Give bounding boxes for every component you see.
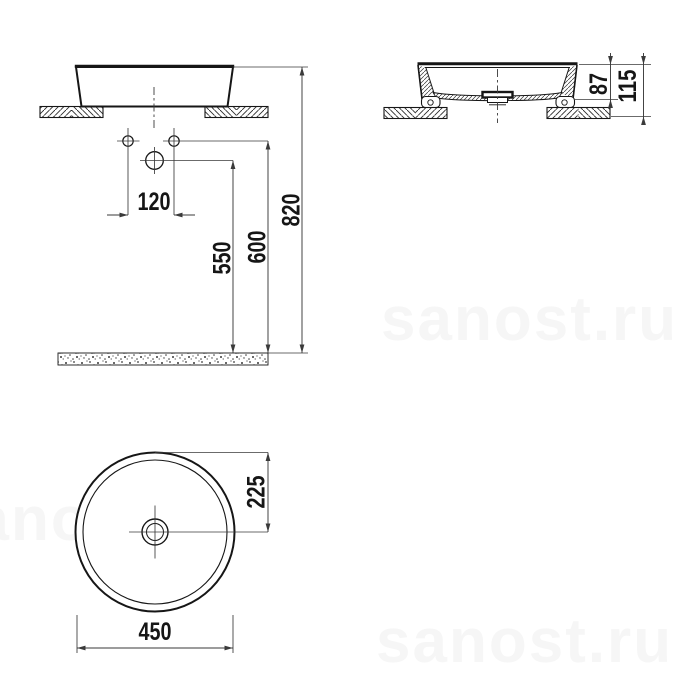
basin-foot-left bbox=[422, 97, 441, 108]
dim-label-rim-height: 820 bbox=[278, 194, 306, 227]
dim-arrow bbox=[266, 141, 271, 150]
countertop-side-left bbox=[384, 108, 447, 119]
dim-arrow bbox=[231, 161, 236, 170]
technical-drawing-sheet: sanost.ru sanost.ru sanost.ru bbox=[0, 0, 700, 700]
dim-arrow bbox=[120, 213, 129, 218]
basin-dimension-drawing: 120 550 600 bbox=[0, 0, 700, 700]
dim-label-center-offset: 225 bbox=[243, 475, 271, 508]
dim-drain-height: 550 bbox=[209, 161, 237, 354]
countertop-front-right bbox=[205, 107, 268, 118]
foot-hole bbox=[562, 100, 567, 105]
dim-holes-height: 600 bbox=[244, 141, 272, 353]
dim-total-height: 115 bbox=[611, 53, 651, 125]
basin-front-outline bbox=[76, 67, 233, 107]
dim-label-hole-spacing: 120 bbox=[138, 188, 171, 216]
top-plan-view: 225 450 bbox=[76, 453, 271, 654]
basin-foot-right bbox=[556, 97, 575, 108]
dim-arrow bbox=[266, 524, 271, 533]
dim-arrow bbox=[231, 345, 236, 354]
dim-arrow bbox=[266, 345, 271, 354]
dim-arrow bbox=[608, 100, 613, 109]
front-view: 120 550 600 bbox=[40, 66, 308, 365]
dim-arrow bbox=[300, 67, 305, 76]
dim-hole-spacing: 120 bbox=[107, 188, 195, 217]
dim-arrow bbox=[641, 56, 646, 65]
floor bbox=[58, 353, 268, 365]
dim-label-holes-height: 600 bbox=[244, 231, 272, 264]
dim-arrow bbox=[225, 646, 234, 651]
dim-arrow bbox=[77, 646, 86, 651]
dim-arrow bbox=[174, 213, 183, 218]
dim-label-bowl-depth: 87 bbox=[585, 73, 613, 95]
countertop-side-right bbox=[547, 108, 610, 119]
dim-label-total-height: 115 bbox=[614, 69, 642, 102]
countertop-front-left bbox=[40, 107, 103, 118]
side-section-view: 87 115 bbox=[384, 53, 651, 125]
dim-outer-diameter: 450 bbox=[77, 615, 233, 653]
dim-arrow bbox=[641, 117, 646, 126]
dim-arrow bbox=[608, 56, 613, 65]
dim-arrow bbox=[266, 453, 271, 462]
dim-label-outer-diameter: 450 bbox=[139, 618, 172, 646]
foot-hole bbox=[428, 100, 433, 105]
dim-arrow bbox=[300, 345, 305, 354]
dim-label-drain-height: 550 bbox=[209, 242, 237, 275]
